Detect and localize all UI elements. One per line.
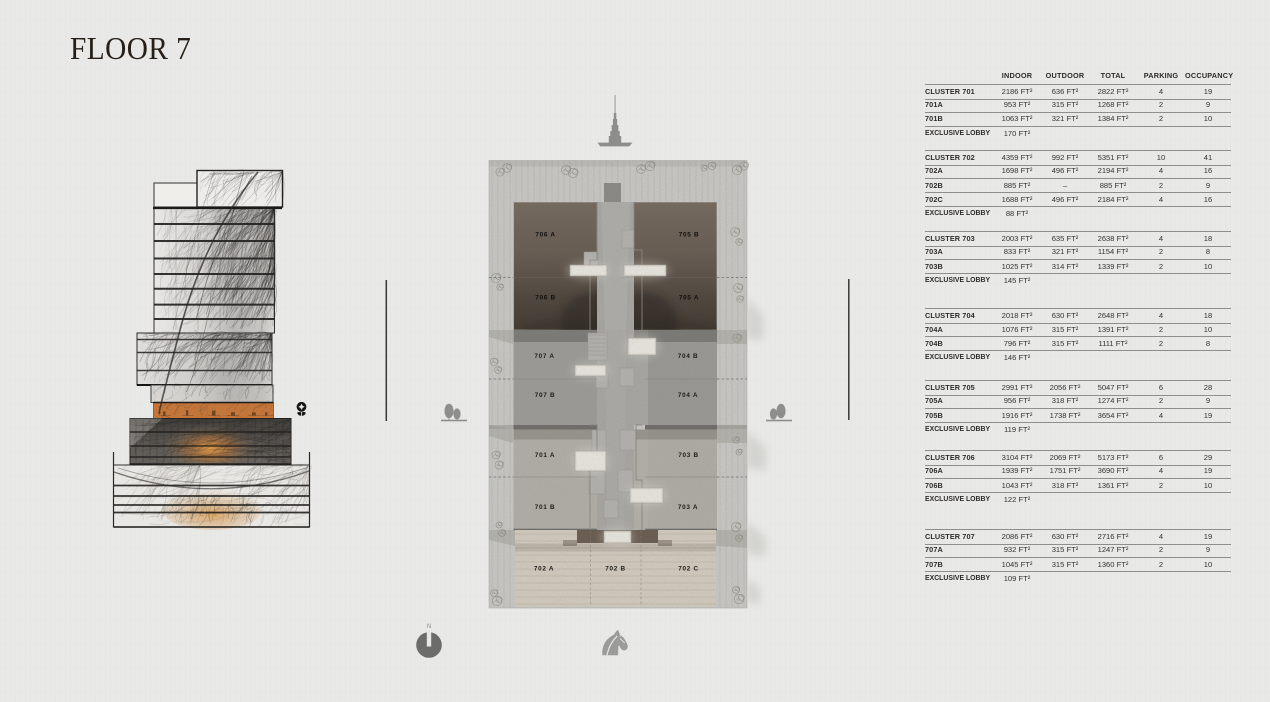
svg-text:706 A: 706 A bbox=[535, 232, 555, 239]
svg-text:702 B: 702 B bbox=[605, 566, 626, 573]
svg-text:703 A: 703 A bbox=[678, 504, 698, 511]
svg-text:701 A: 701 A bbox=[535, 452, 555, 459]
svg-text:704 B: 704 B bbox=[678, 353, 699, 360]
svg-text:704 A: 704 A bbox=[678, 392, 698, 399]
svg-text:707 B: 707 B bbox=[535, 392, 556, 399]
svg-text:703 B: 703 B bbox=[678, 452, 699, 459]
svg-text:705 B: 705 B bbox=[679, 232, 700, 239]
svg-text:706 B: 706 B bbox=[535, 295, 556, 302]
svg-text:705 A: 705 A bbox=[679, 295, 699, 302]
svg-text:707 A: 707 A bbox=[534, 353, 554, 360]
svg-text:701 B: 701 B bbox=[535, 504, 556, 511]
svg-text:702 A: 702 A bbox=[534, 566, 554, 573]
svg-text:N: N bbox=[427, 624, 431, 630]
svg-text:702 C: 702 C bbox=[678, 566, 699, 573]
